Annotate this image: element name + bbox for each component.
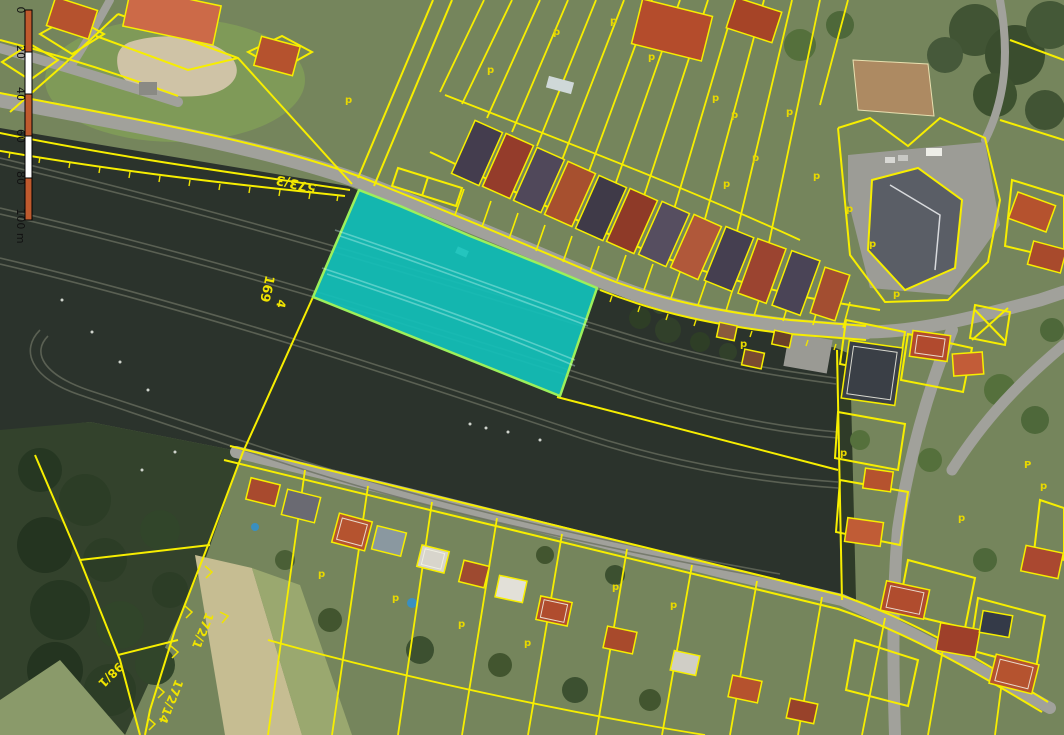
svg-text:p: p — [712, 93, 719, 104]
scalebar-tick-60: 60 — [14, 129, 27, 143]
svg-text:p: p — [786, 107, 793, 118]
scalebar-tick-40: 40 — [14, 87, 27, 101]
svg-text:p: p — [648, 52, 655, 63]
svg-text:P: P — [1024, 460, 1031, 471]
svg-text:p: p — [813, 171, 820, 182]
scalebar-tick-80: 80 — [14, 171, 27, 185]
svg-text:p: p — [487, 65, 494, 76]
scalebar-tick-100: 100 m — [14, 208, 27, 243]
svg-text:p: p — [840, 448, 847, 459]
svg-text:p: p — [752, 153, 759, 164]
scalebar-tick-0: 0 — [14, 7, 27, 14]
svg-text:p: p — [670, 600, 677, 611]
svg-text:p: p — [893, 289, 900, 300]
svg-text:p: p — [318, 569, 325, 580]
svg-text:p: p — [524, 638, 531, 649]
svg-text:p: p — [345, 95, 352, 106]
svg-text:p: p — [612, 582, 619, 593]
map-canvas[interactable]: 573/3 169 4 172/1 98/1 172/14 p p p p p … — [0, 0, 1064, 735]
svg-text:p: p — [610, 16, 617, 27]
svg-text:p: p — [553, 27, 560, 38]
svg-text:p: p — [723, 179, 730, 190]
svg-text:p: p — [846, 204, 853, 215]
svg-text:p: p — [740, 339, 747, 350]
svg-text:p: p — [958, 513, 965, 524]
map-viewport[interactable]: 573/3 169 4 172/1 98/1 172/14 p p p p p … — [0, 0, 1064, 735]
svg-text:p: p — [1040, 481, 1047, 492]
scalebar-tick-20: 20 — [14, 45, 27, 59]
svg-text:p: p — [731, 110, 738, 121]
svg-text:p: p — [869, 239, 876, 250]
svg-text:p: p — [458, 619, 465, 630]
svg-text:p: p — [392, 593, 399, 604]
